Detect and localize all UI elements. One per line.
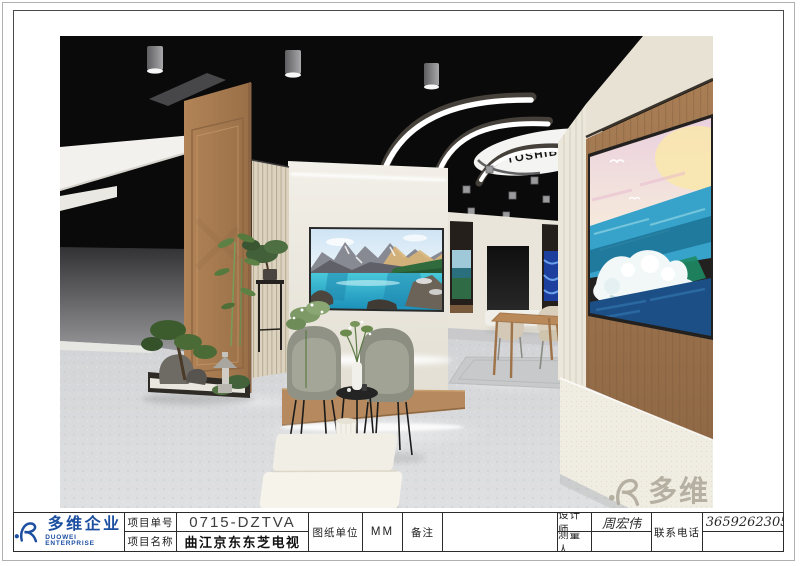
project-no-value: 0715-DZTVA: [177, 513, 309, 532]
unit-label: 图纸单位: [309, 513, 363, 551]
phone-label: 联系电话: [652, 513, 703, 551]
remark-label: 备注: [403, 513, 443, 551]
company-name-cn: 多维企业: [48, 517, 122, 533]
company-monogram-icon: [14, 518, 42, 546]
white-ottoman: [259, 433, 407, 508]
designer-label: 设计师: [558, 513, 592, 532]
interior-render: TOSHIBA: [60, 36, 713, 508]
unit-value: MM: [363, 513, 403, 551]
watermark-text: 多维: [648, 478, 710, 507]
center-tv-screen: [311, 229, 443, 312]
project-name-label: 项目名称: [125, 532, 177, 551]
phone-value: 13659262305: [703, 513, 783, 532]
surveyor-label: 测量人: [558, 532, 592, 551]
title-block: 多维企业 DUOWEI ENTERPRISE 项目单号 0715-DZTVA 项…: [13, 512, 784, 552]
drawing-sheet: TOSHIBA: [0, 0, 800, 566]
company-watermark: 多维: [608, 472, 726, 512]
project-no-label: 项目单号: [125, 513, 177, 532]
project-name-value: 曲江京东东芝电视: [177, 532, 309, 551]
company-name-en: DUOWEI ENTERPRISE: [45, 535, 124, 548]
company-logo: 多维企业 DUOWEI ENTERPRISE: [14, 513, 125, 551]
surveyor-value: [592, 532, 652, 551]
remark-value: [443, 513, 558, 551]
watermark-monogram-icon: [608, 475, 646, 509]
designer-signature: 周宏伟: [592, 513, 652, 532]
center-tv: [309, 227, 444, 312]
phone-empty-cell: [703, 532, 783, 551]
